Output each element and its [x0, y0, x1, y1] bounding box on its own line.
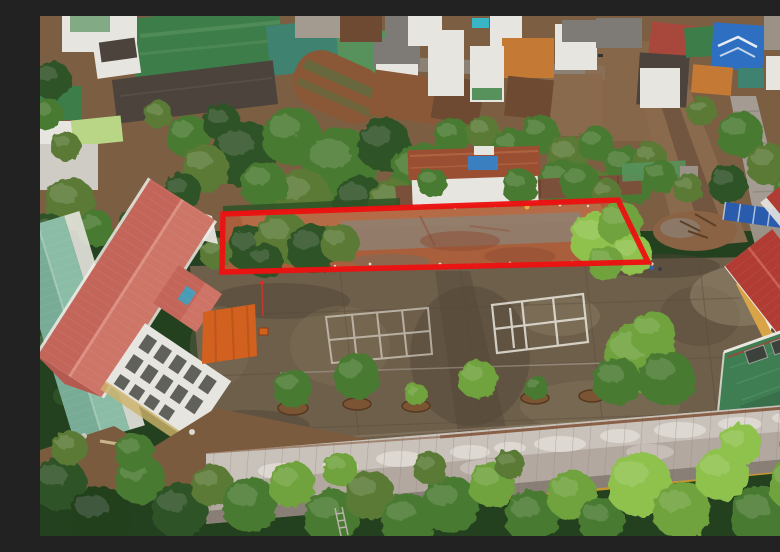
person — [658, 267, 662, 271]
flag — [260, 281, 264, 285]
flagpole — [262, 284, 263, 316]
person — [650, 266, 654, 270]
blue-roof-house — [710, 22, 765, 72]
person — [189, 429, 195, 435]
aerial-photo: Aerial drone photograph — [40, 16, 780, 536]
water-tank — [468, 156, 498, 170]
shop-sign — [472, 18, 489, 28]
aerial-photo-canvas — [40, 16, 780, 536]
